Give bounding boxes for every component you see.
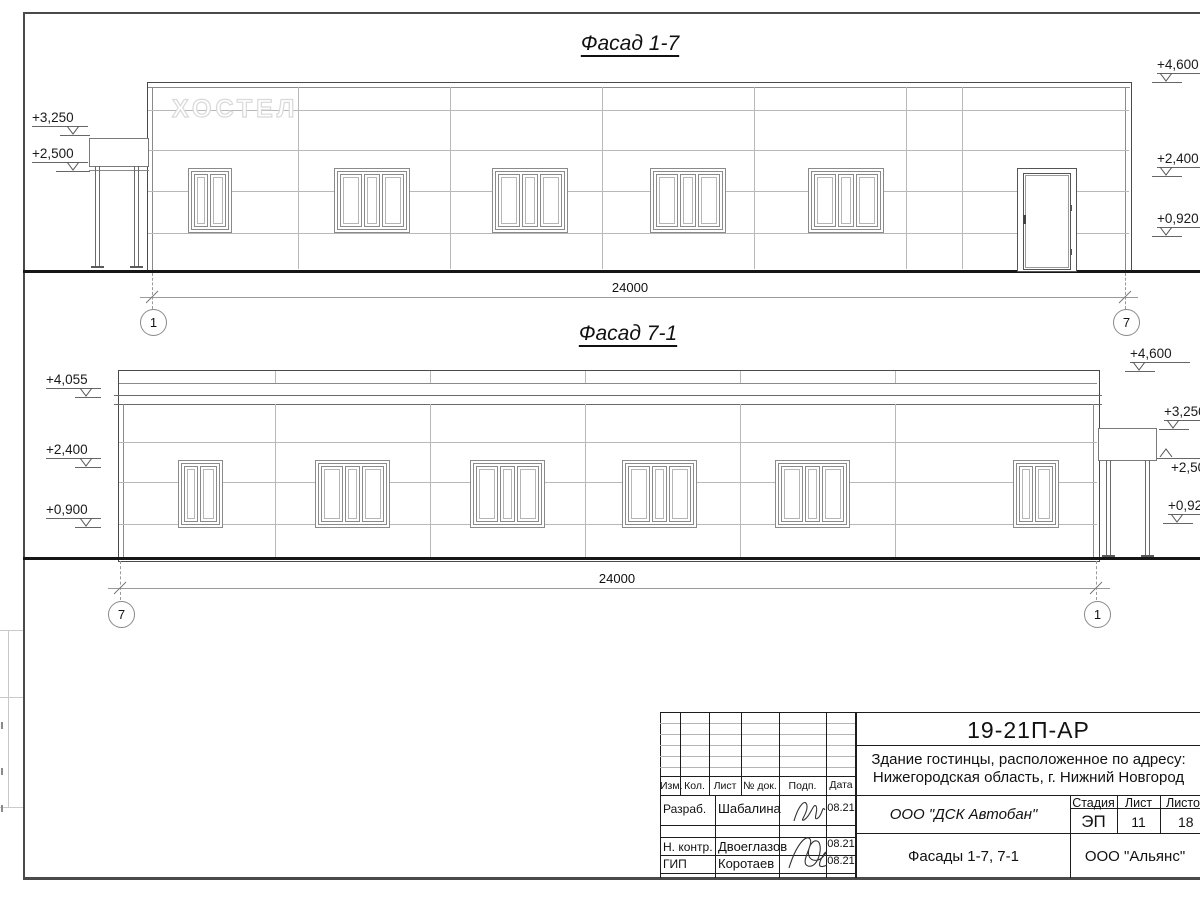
tb-stage-value: ЭП	[1070, 812, 1117, 832]
elevation-mark: +4,055	[46, 372, 101, 389]
elevation-mark: +3,250	[32, 110, 88, 127]
facade-71-title: Фасад 7-1	[553, 322, 703, 346]
axis-marker: 1	[1084, 601, 1111, 628]
dimension-line	[140, 297, 1138, 298]
window	[470, 460, 545, 528]
panel-joint	[895, 404, 896, 559]
canopy-post	[1149, 460, 1150, 556]
margin-text-fragment	[1, 805, 3, 812]
elevation-arrow-icon	[1166, 420, 1180, 429]
tb-sheets-label: Листов	[1166, 796, 1200, 810]
elevation-arrow-icon	[79, 518, 93, 527]
tb-sheets-value: 18	[1178, 814, 1194, 830]
window	[1013, 460, 1059, 528]
door-handle	[1023, 215, 1026, 224]
panel-joint	[740, 404, 741, 559]
wall-inner-line	[1125, 87, 1126, 270]
elevation-arrow-icon	[1159, 167, 1173, 176]
tb-col-data: Дата	[826, 779, 856, 791]
extension-line	[1125, 273, 1126, 309]
panel-joint	[585, 404, 586, 559]
tb-col-list: Лист	[709, 780, 741, 792]
siding-line	[119, 442, 1097, 443]
extension-line	[1096, 561, 1097, 600]
elevation-mark: +0,900	[46, 502, 101, 519]
post-base	[130, 266, 143, 268]
roof-joint	[430, 371, 431, 383]
window	[650, 168, 726, 233]
drawing-sheet: Фасад 1-7 ХОСТЕЛ +3,250	[0, 0, 1200, 900]
signature	[794, 802, 825, 821]
canopy-slab	[1098, 428, 1157, 461]
tb-col-ndok: № док.	[741, 780, 779, 792]
tb-name: Двоеглазов	[718, 839, 787, 854]
tb-col-kol: Кол.	[680, 780, 709, 792]
frame-top	[23, 12, 1200, 14]
margin-line	[0, 630, 23, 631]
panel-joint	[275, 404, 276, 559]
margin-text-fragment	[1, 768, 3, 775]
dimension-line	[108, 588, 1110, 589]
axis-marker: 7	[1113, 309, 1140, 336]
elevation-mark: +2,400	[1157, 151, 1200, 168]
signature	[789, 838, 827, 868]
dimension-label: 24000	[590, 280, 670, 295]
elevation-arrow-icon	[66, 126, 80, 135]
window	[492, 168, 568, 233]
elevation-mark: +2,400	[46, 442, 101, 459]
elevation-arrow-icon	[1159, 227, 1173, 236]
margin-line	[0, 697, 23, 698]
tb-col-podp: Подп.	[779, 780, 826, 792]
frame-bottom	[23, 877, 1200, 880]
elevation-arrow-icon	[1159, 73, 1173, 82]
window	[775, 460, 850, 528]
elevation-mark: +3,250	[1164, 404, 1200, 421]
siding-line	[148, 150, 1129, 151]
tb-line	[857, 833, 1200, 834]
tb-col-izm: Изм.	[660, 780, 680, 792]
post-base	[91, 266, 104, 268]
tb-role: Н. контр.	[663, 840, 713, 854]
canopy-post	[99, 166, 100, 267]
canopy-post	[134, 166, 135, 267]
door-hinge	[1070, 205, 1072, 211]
panel-joint	[754, 87, 755, 269]
elevation-mark: +0,920	[1168, 498, 1200, 515]
siding-line	[119, 524, 1097, 525]
sign-text: ХОСТЕЛ	[172, 95, 298, 124]
panel-joint	[430, 404, 431, 559]
elevation-mark: +2,500	[32, 146, 88, 163]
tb-sheet-value: 11	[1117, 814, 1160, 830]
tb-name: Коротаев	[718, 856, 774, 871]
extension-line	[120, 561, 121, 600]
roof-joint	[895, 371, 896, 383]
tb-contractor: ООО "ДСК Автобан"	[857, 806, 1070, 823]
axis-marker: 1	[140, 309, 167, 336]
canopy-post	[1110, 460, 1111, 556]
tb-date: 08.21	[826, 855, 856, 867]
roof-joint	[585, 371, 586, 383]
margin-line	[8, 630, 9, 807]
wall-inner-line	[152, 87, 153, 270]
elevation-arrow-icon	[66, 162, 80, 171]
tb-role: ГИП	[663, 857, 687, 871]
window	[188, 168, 232, 233]
tb-date: 08.21	[826, 802, 856, 814]
canopy-post	[1145, 460, 1146, 556]
margin-line	[0, 807, 23, 808]
tb-doc-number: 19-21П-АР	[857, 717, 1200, 744]
tb-organization: ООО "Альянс"	[1070, 848, 1200, 865]
elevation-mark: +2,500	[1157, 458, 1200, 475]
tb-sheet-label: Лист	[1117, 796, 1160, 810]
tb-date: 08.21	[826, 838, 856, 850]
panel-joint	[450, 87, 451, 269]
entrance-door	[1017, 168, 1077, 272]
tb-line	[1160, 795, 1161, 833]
panel-joint	[962, 87, 963, 269]
roof-joint	[740, 371, 741, 383]
canopy-post	[138, 166, 139, 267]
elevation-arrow-icon	[1132, 362, 1146, 371]
tb-stage-label: Стадия	[1070, 796, 1117, 810]
tb-name: Шабалина	[718, 801, 781, 816]
window	[808, 168, 884, 233]
tb-line	[715, 795, 716, 878]
siding-line	[148, 191, 1129, 192]
canopy-post	[95, 166, 96, 267]
window	[334, 168, 410, 233]
siding-line	[148, 233, 1129, 234]
dimension-label: 24000	[577, 571, 657, 586]
tb-address-line1: Здание гостинцы, расположенное по адресу…	[857, 751, 1200, 768]
axis-marker: 7	[108, 601, 135, 628]
roof-line	[119, 383, 1097, 384]
canopy-underside	[89, 170, 149, 171]
facade-17-title: Фасад 1-7	[555, 32, 705, 56]
tb-sheet-name: Фасады 1-7, 7-1	[857, 848, 1070, 865]
ground-line	[23, 557, 1200, 560]
frame-left	[23, 12, 25, 880]
extension-line	[152, 273, 153, 309]
canopy-post	[1106, 460, 1107, 556]
window	[178, 460, 223, 528]
door-hinge	[1070, 249, 1072, 255]
panel-joint	[602, 87, 603, 269]
elevation-mark: +4,600	[1130, 346, 1190, 363]
window	[315, 460, 390, 528]
tb-line	[857, 745, 1200, 746]
elevation-arrow-icon	[1159, 448, 1173, 457]
roof-inner-line	[148, 87, 1130, 88]
window	[622, 460, 697, 528]
canopy-slab	[89, 138, 149, 167]
elevation-mark: +4,600	[1157, 57, 1200, 74]
roof-joint	[275, 371, 276, 383]
tb-role: Разраб.	[663, 802, 706, 816]
elevation-arrow-icon	[1170, 514, 1184, 523]
fascia-band	[114, 395, 1102, 405]
panel-joint	[906, 87, 907, 269]
siding-line	[119, 482, 1097, 483]
elevation-arrow-icon	[79, 458, 93, 467]
elevation-arrow-icon	[79, 388, 93, 397]
margin-text-fragment	[1, 722, 3, 729]
elevation-mark: +0,920	[1157, 211, 1200, 228]
tb-address-line2: Нижегородская область, г. Нижний Новгоро…	[857, 769, 1200, 786]
